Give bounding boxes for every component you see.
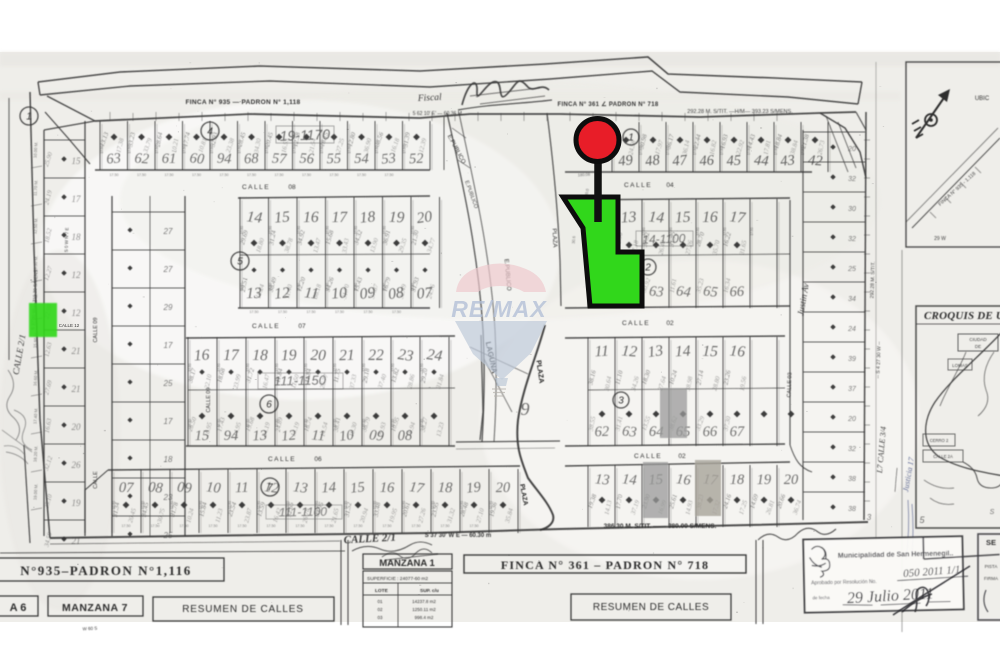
svg-text:18: 18 bbox=[359, 208, 376, 227]
svg-text:18: 18 bbox=[164, 455, 173, 464]
svg-text:17.50: 17.50 bbox=[165, 173, 174, 177]
svg-text:5 62 10' E’ — 60.36 M.: 5 62 10' E’ — 60.36 M. bbox=[413, 111, 464, 117]
svg-text:68: 68 bbox=[244, 151, 260, 168]
svg-text:56: 56 bbox=[299, 151, 315, 168]
svg-text:01: 01 bbox=[377, 599, 383, 604]
svg-text:14: 14 bbox=[321, 480, 336, 497]
svg-text:29 W: 29 W bbox=[934, 236, 946, 242]
svg-text:19: 19 bbox=[281, 347, 297, 365]
svg-text:14: 14 bbox=[648, 208, 665, 226]
svg-text:12: 12 bbox=[281, 427, 297, 444]
svg-text:17: 17 bbox=[332, 209, 349, 226]
svg-text:17.50: 17.50 bbox=[383, 524, 392, 528]
svg-text:CALLE: CALLE bbox=[624, 182, 652, 189]
svg-text:N°935–PADRON N°1,116: N°935–PADRON N°1,116 bbox=[20, 563, 192, 578]
svg-text:998.4 m2: 998.4 m2 bbox=[415, 615, 434, 620]
svg-text:09: 09 bbox=[359, 284, 377, 303]
svg-text:17.50: 17.50 bbox=[296, 524, 305, 528]
svg-text:23: 23 bbox=[163, 493, 173, 502]
svg-text:18: 18 bbox=[730, 472, 745, 488]
svg-text:20: 20 bbox=[416, 208, 434, 227]
svg-text:16: 16 bbox=[303, 209, 319, 226]
svg-text:17.50: 17.50 bbox=[180, 524, 189, 528]
svg-text:17: 17 bbox=[164, 341, 173, 350]
svg-text:66: 66 bbox=[729, 284, 745, 301]
svg-text:17.50: 17.50 bbox=[750, 227, 754, 235]
svg-text:21: 21 bbox=[339, 347, 355, 365]
svg-text:66: 66 bbox=[703, 424, 719, 440]
svg-text:17: 17 bbox=[164, 417, 173, 426]
svg-text:39: 39 bbox=[848, 356, 856, 363]
svg-text:08: 08 bbox=[398, 428, 414, 444]
svg-text:RESUMEN DE CALLES: RESUMEN DE CALLES bbox=[182, 604, 303, 615]
svg-text:20: 20 bbox=[784, 472, 799, 488]
svg-text:16: 16 bbox=[675, 471, 692, 489]
svg-text:32: 32 bbox=[848, 236, 856, 243]
svg-text:23: 23 bbox=[397, 346, 415, 365]
svg-text:17.50: 17.50 bbox=[354, 524, 363, 528]
svg-text:17.50: 17.50 bbox=[364, 310, 373, 314]
svg-text:03: 03 bbox=[377, 615, 383, 620]
svg-text:292.28 M. S/TIT. —H/M— 393: 292.28 M. S/TIT. —H/M— 393.23 S/MENS. bbox=[687, 109, 793, 115]
svg-text:CALLE: CALLE bbox=[634, 453, 662, 460]
svg-text:21: 21 bbox=[72, 346, 81, 356]
svg-text:UBIC: UBIC bbox=[975, 96, 990, 102]
svg-text:38: 38 bbox=[848, 506, 856, 513]
svg-text:17.50: 17.50 bbox=[275, 173, 284, 177]
svg-text:19: 19 bbox=[757, 472, 773, 488]
svg-text:17: 17 bbox=[223, 347, 240, 364]
svg-text:02: 02 bbox=[678, 453, 686, 460]
svg-text:CALLE: CALLE bbox=[622, 320, 650, 327]
svg-text:07: 07 bbox=[416, 284, 434, 303]
svg-text:17: 17 bbox=[72, 194, 82, 204]
svg-text:26: 26 bbox=[72, 460, 82, 470]
svg-text:20: 20 bbox=[847, 416, 856, 423]
svg-text:16: 16 bbox=[380, 480, 396, 496]
svg-text:292.28 M. S/TIT.: 292.28 M. S/TIT. bbox=[869, 262, 876, 299]
svg-text:29: 29 bbox=[163, 303, 173, 312]
svg-text:19: 19 bbox=[389, 209, 405, 227]
svg-text:94: 94 bbox=[224, 428, 239, 444]
svg-text:25: 25 bbox=[163, 531, 173, 540]
svg-text:19-1170: 19-1170 bbox=[279, 126, 330, 144]
svg-text:17: 17 bbox=[729, 208, 747, 227]
svg-text:07: 07 bbox=[119, 480, 135, 497]
svg-text:10: 10 bbox=[331, 284, 348, 302]
svg-text:38: 38 bbox=[848, 476, 856, 483]
svg-text:3: 3 bbox=[867, 513, 872, 522]
svg-text:de fecha: de fecha bbox=[812, 595, 830, 600]
svg-text:55: 55 bbox=[326, 151, 341, 167]
svg-text:FINCA N° 935 — PADRON N° 1,1: FINCA N° 935 — PADRON N° 1,118 bbox=[186, 98, 301, 106]
svg-text:1: 1 bbox=[628, 133, 634, 144]
svg-text:62: 62 bbox=[594, 424, 609, 440]
svg-text:65: 65 bbox=[702, 283, 718, 301]
svg-text:11: 11 bbox=[235, 480, 249, 496]
svg-text:S 0 W N 7 E: S 0 W N 7 E bbox=[64, 227, 70, 252]
svg-text:08: 08 bbox=[288, 184, 296, 191]
svg-text:11: 11 bbox=[303, 284, 319, 302]
svg-text:CALLE 09: CALLE 09 bbox=[93, 317, 99, 342]
svg-text:13: 13 bbox=[252, 428, 267, 445]
svg-text:53: 53 bbox=[381, 150, 397, 167]
svg-text:09: 09 bbox=[368, 427, 385, 445]
svg-text:7: 7 bbox=[267, 483, 273, 494]
svg-text:14237.8 m2: 14237.8 m2 bbox=[412, 599, 436, 604]
svg-text:14: 14 bbox=[246, 208, 263, 227]
svg-text:27: 27 bbox=[163, 227, 173, 236]
svg-text:13: 13 bbox=[292, 479, 308, 497]
svg-text:DE: DE bbox=[975, 344, 981, 349]
svg-text:Fiscal: Fiscal bbox=[417, 93, 443, 104]
svg-text:SUPERFICIE : 24077-60 m2: SUPERFICIE : 24077-60 m2 bbox=[367, 576, 428, 582]
svg-text:16: 16 bbox=[702, 209, 718, 226]
svg-text:62: 62 bbox=[134, 151, 150, 168]
svg-text:18: 18 bbox=[72, 232, 82, 242]
svg-text:06: 06 bbox=[314, 456, 322, 463]
svg-text:25: 25 bbox=[163, 379, 173, 388]
svg-text:32: 32 bbox=[848, 176, 856, 183]
svg-text:63: 63 bbox=[621, 423, 637, 440]
svg-text:10: 10 bbox=[205, 479, 222, 497]
svg-text:PISTA: PISTA bbox=[985, 564, 998, 569]
svg-text:A 6: A 6 bbox=[10, 602, 27, 614]
svg-text:MANZANA 7: MANZANA 7 bbox=[62, 602, 128, 614]
svg-text:32: 32 bbox=[848, 446, 856, 453]
svg-text:57: 57 bbox=[272, 151, 288, 168]
svg-text:15: 15 bbox=[72, 156, 82, 166]
svg-text:S: S bbox=[990, 509, 995, 516]
svg-text:13: 13 bbox=[647, 342, 665, 361]
svg-text:12: 12 bbox=[621, 342, 638, 360]
svg-text:FINCA N° 361 – PADRON N° 7: FINCA N° 361 – PADRON N° 718 bbox=[501, 558, 709, 572]
svg-text:24: 24 bbox=[847, 326, 856, 333]
svg-text:07: 07 bbox=[298, 323, 306, 330]
svg-text:02: 02 bbox=[377, 607, 383, 612]
svg-text:20: 20 bbox=[310, 347, 326, 365]
svg-text:63: 63 bbox=[648, 283, 664, 300]
svg-text:21: 21 bbox=[72, 536, 81, 546]
svg-text:30: 30 bbox=[848, 206, 856, 213]
svg-text:20: 20 bbox=[496, 480, 512, 496]
svg-text:14: 14 bbox=[621, 471, 637, 488]
svg-text:W 60 S: W 60 S bbox=[82, 625, 97, 631]
svg-text:17.50: 17.50 bbox=[209, 524, 218, 528]
svg-text:17.50: 17.50 bbox=[441, 524, 450, 528]
svg-text:27: 27 bbox=[163, 265, 173, 274]
svg-text:44: 44 bbox=[753, 152, 769, 169]
svg-text:17.50: 17.50 bbox=[392, 310, 401, 314]
svg-text:42: 42 bbox=[807, 153, 823, 170]
svg-text:46: 46 bbox=[699, 152, 715, 169]
svg-text:CALLE 12: CALLE 12 bbox=[59, 323, 80, 328]
svg-text:17.50: 17.50 bbox=[247, 173, 256, 177]
svg-text:24: 24 bbox=[426, 346, 444, 365]
svg-text:17.50: 17.50 bbox=[250, 310, 259, 314]
svg-text:CALLE: CALLE bbox=[242, 184, 270, 191]
svg-text:386.30 M. S/TIT. —— 380.00: 386.30 M. S/TIT. —— 380.00 S/MENS. bbox=[604, 523, 717, 530]
svg-text:47: 47 bbox=[672, 152, 689, 169]
svg-text:17.50: 17.50 bbox=[385, 173, 394, 177]
svg-text:64: 64 bbox=[675, 283, 691, 301]
svg-text:49: 49 bbox=[618, 152, 635, 170]
svg-text:13: 13 bbox=[594, 471, 610, 488]
svg-text:17.50: 17.50 bbox=[335, 310, 344, 314]
svg-text:13: 13 bbox=[620, 208, 637, 226]
svg-text:3: 3 bbox=[618, 396, 624, 407]
svg-text:54: 54 bbox=[354, 151, 369, 167]
svg-text:MANZANA 1: MANZANA 1 bbox=[379, 558, 435, 569]
svg-text:17.50: 17.50 bbox=[137, 173, 146, 177]
svg-text:22: 22 bbox=[368, 347, 384, 364]
svg-text:52: 52 bbox=[409, 151, 424, 168]
svg-text:11: 11 bbox=[594, 343, 609, 361]
svg-text:1250.11 m2: 1250.11 m2 bbox=[412, 607, 436, 612]
svg-text:CIUDAD: CIUDAD bbox=[969, 337, 987, 342]
svg-text:6: 6 bbox=[266, 400, 272, 411]
svg-text:15: 15 bbox=[675, 209, 692, 227]
svg-text:17.50: 17.50 bbox=[302, 173, 311, 177]
svg-text:13: 13 bbox=[246, 285, 262, 302]
svg-text:17.50: 17.50 bbox=[192, 173, 201, 177]
svg-text:RESUMEN DE CALLES: RESUMEN DE CALLES bbox=[593, 602, 709, 613]
svg-text:LOTE: LOTE bbox=[375, 588, 389, 594]
svg-text:17.50: 17.50 bbox=[122, 524, 131, 528]
svg-text:17.50: 17.50 bbox=[267, 524, 276, 528]
svg-text:111-1150: 111-1150 bbox=[274, 373, 327, 389]
svg-text:25: 25 bbox=[847, 266, 856, 273]
svg-text:43: 43 bbox=[780, 152, 796, 169]
svg-text:02: 02 bbox=[666, 320, 674, 327]
svg-text:CALLE 09: CALLE 09 bbox=[206, 387, 212, 412]
svg-text:11: 11 bbox=[311, 428, 326, 445]
svg-text:48: 48 bbox=[644, 152, 661, 170]
svg-text:61: 61 bbox=[162, 151, 177, 167]
svg-text:19: 19 bbox=[466, 479, 483, 497]
svg-text:16: 16 bbox=[193, 346, 210, 364]
svg-text:12: 12 bbox=[72, 308, 82, 318]
svg-text:15: 15 bbox=[350, 479, 366, 496]
svg-text:S 37 30' W E — 60.30 m: S 37 30' W E — 60.30 m bbox=[425, 533, 491, 539]
svg-text:12: 12 bbox=[72, 270, 82, 280]
svg-text:16: 16 bbox=[729, 342, 746, 360]
svg-text:21: 21 bbox=[72, 384, 81, 394]
svg-text:63: 63 bbox=[106, 150, 122, 167]
svg-text:17.50: 17.50 bbox=[412, 524, 421, 528]
svg-text:15: 15 bbox=[274, 208, 291, 226]
svg-text:14: 14 bbox=[675, 343, 692, 361]
svg-text:PLAZA: PLAZA bbox=[551, 228, 558, 247]
svg-text:RE/MAX: RE/MAX bbox=[451, 296, 547, 322]
svg-text:45: 45 bbox=[726, 153, 741, 170]
svg-text:04: 04 bbox=[666, 182, 674, 189]
svg-text:CALLE 2A: CALLE 2A bbox=[933, 454, 953, 459]
svg-text:18: 18 bbox=[252, 347, 268, 364]
svg-text:12: 12 bbox=[273, 284, 290, 303]
svg-text:1: 1 bbox=[26, 112, 32, 123]
svg-text:17.50: 17.50 bbox=[110, 173, 119, 177]
svg-text:08: 08 bbox=[387, 284, 405, 303]
svg-text:FINCA N° 361 ∠ PADRON N° 718: FINCA N° 361 ∠ PADRON N° 718 bbox=[558, 101, 659, 108]
svg-text:34: 34 bbox=[848, 296, 856, 303]
svg-text:4: 4 bbox=[207, 127, 213, 138]
svg-text:30.6: 30.6 bbox=[571, 235, 577, 244]
svg-text:CALLE 03: CALLE 03 bbox=[787, 372, 794, 397]
svg-text:CERRO 2: CERRO 2 bbox=[930, 438, 949, 443]
svg-text:17.50: 17.50 bbox=[330, 173, 339, 177]
svg-text:17.50: 17.50 bbox=[238, 524, 247, 528]
svg-text:60: 60 bbox=[189, 150, 206, 168]
svg-text:CALLE: CALLE bbox=[268, 456, 296, 463]
svg-text:67: 67 bbox=[730, 424, 746, 440]
svg-text:2: 2 bbox=[644, 263, 651, 274]
svg-text:17.50: 17.50 bbox=[357, 173, 366, 177]
svg-text:111-1100: 111-1100 bbox=[279, 505, 328, 520]
svg-text:SE: SE bbox=[986, 538, 996, 547]
svg-text:SUP. c/u: SUP. c/u bbox=[420, 588, 439, 594]
svg-text:15: 15 bbox=[195, 428, 210, 444]
svg-text:17.50: 17.50 bbox=[325, 524, 334, 528]
svg-text:17.50: 17.50 bbox=[220, 173, 229, 177]
svg-text:9: 9 bbox=[521, 399, 530, 419]
svg-text:180.08: 180.08 bbox=[578, 172, 591, 178]
svg-text:37: 37 bbox=[848, 386, 857, 393]
svg-text:19: 19 bbox=[72, 498, 82, 508]
svg-text:15: 15 bbox=[702, 343, 718, 361]
svg-text:14-1100: 14-1100 bbox=[642, 231, 686, 247]
svg-text:17.50: 17.50 bbox=[151, 524, 160, 528]
svg-text:20: 20 bbox=[72, 422, 82, 432]
svg-text:17.50: 17.50 bbox=[470, 524, 479, 528]
svg-text:10: 10 bbox=[338, 427, 355, 445]
svg-text:94: 94 bbox=[217, 151, 232, 168]
svg-text:5: 5 bbox=[237, 257, 243, 268]
svg-text:FIRMA: FIRMA bbox=[984, 576, 998, 581]
svg-text:CALLE: CALLE bbox=[93, 471, 99, 489]
svg-text:20: 20 bbox=[847, 146, 856, 153]
svg-text:17.50: 17.50 bbox=[278, 310, 287, 314]
svg-text:CROQUIS DE U: CROQUIS DE U bbox=[924, 310, 1000, 322]
svg-text:18: 18 bbox=[438, 480, 454, 497]
svg-text:CALLE: CALLE bbox=[252, 323, 280, 330]
svg-text:17.50: 17.50 bbox=[307, 310, 316, 314]
